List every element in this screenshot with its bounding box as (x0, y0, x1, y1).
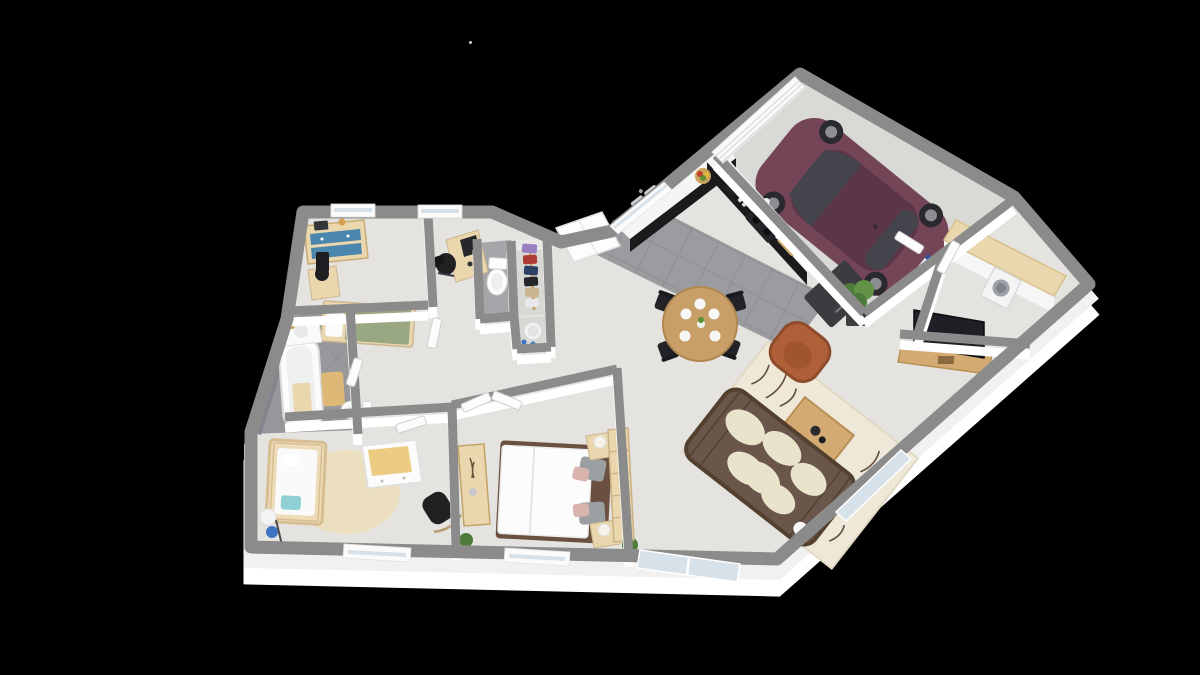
laptop (314, 220, 329, 230)
fruit-bowl (695, 168, 711, 184)
knob (403, 477, 406, 480)
tub-rack (292, 382, 312, 413)
sideboard[interactable] (458, 444, 490, 526)
accent-pillow (573, 503, 590, 517)
wc-room[interactable] (486, 258, 508, 296)
crib[interactable] (266, 440, 326, 525)
bedroom2-window (331, 204, 375, 217)
bedroom2-window-2 (418, 205, 462, 218)
duvet (498, 445, 592, 538)
lamp (598, 524, 610, 536)
dresser-decor (339, 219, 346, 226)
crib-pillow (283, 453, 300, 466)
toilet[interactable] (486, 258, 508, 296)
mouse (468, 262, 473, 267)
flowers (698, 317, 704, 323)
crib-blanket (281, 495, 302, 510)
knob (381, 480, 384, 483)
dining-area[interactable] (653, 287, 748, 362)
plate (680, 331, 691, 342)
toy (266, 526, 278, 538)
bath-mat (321, 371, 345, 406)
sink-faucet (638, 188, 644, 194)
lamp (594, 436, 606, 448)
knob (347, 235, 350, 238)
render-artifact-dot (469, 41, 472, 44)
changing-dresser[interactable] (362, 440, 422, 488)
changing-pad (368, 446, 412, 476)
plate (710, 331, 721, 342)
plate (681, 309, 692, 320)
decor-vase (469, 488, 477, 496)
knob (321, 238, 324, 241)
floorplan-canvas[interactable] (0, 0, 1200, 675)
tv-drawer (938, 356, 954, 364)
basket-opening (528, 326, 539, 337)
dining-table[interactable] (663, 287, 737, 361)
plate (695, 299, 706, 310)
floorplan-render (0, 0, 1200, 675)
dresser[interactable] (304, 219, 368, 265)
lamp-base (315, 267, 329, 281)
plate (709, 309, 720, 320)
shoe (522, 340, 527, 345)
